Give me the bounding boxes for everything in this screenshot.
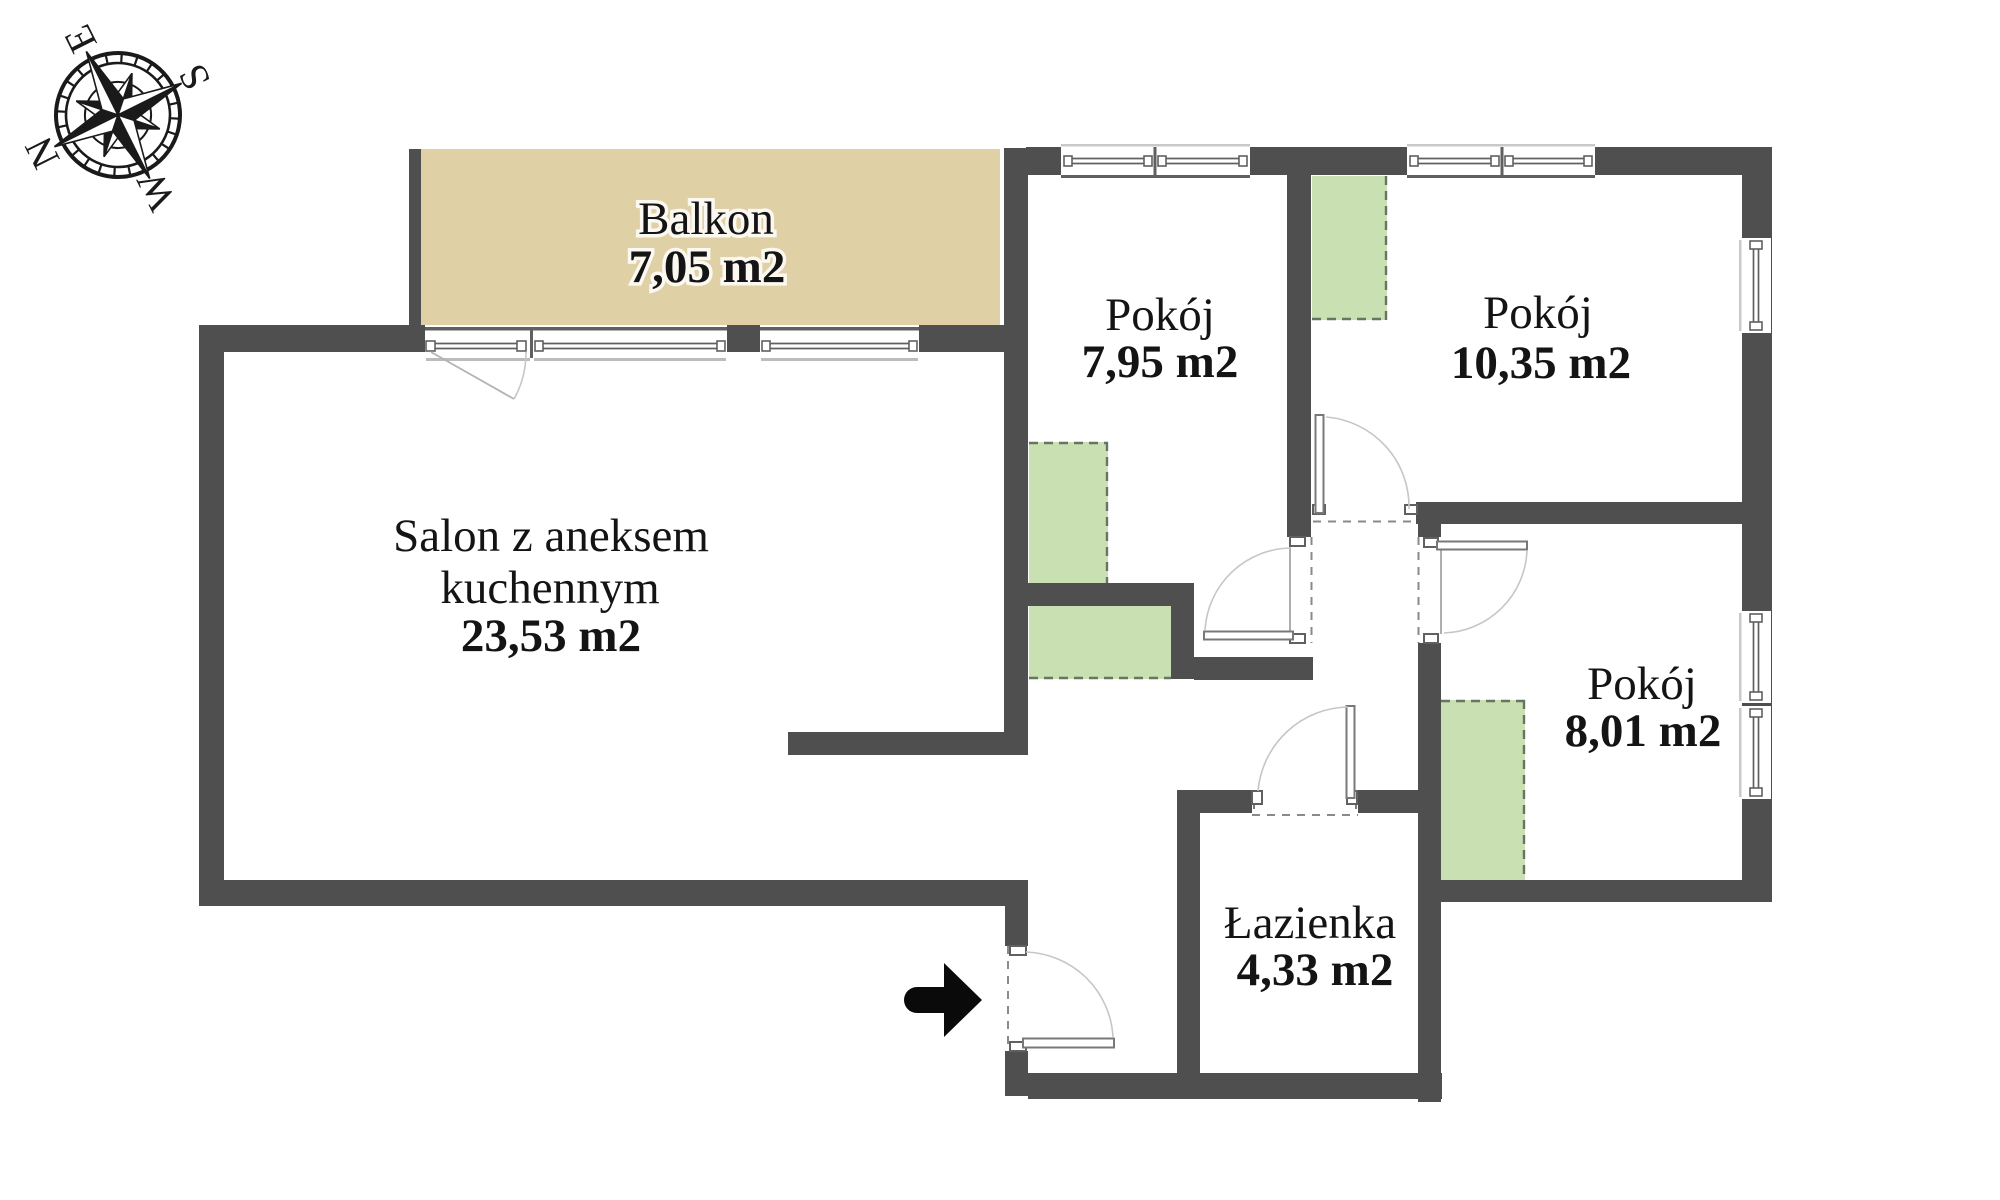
svg-text:kuchennym: kuchennym: [440, 562, 659, 614]
svg-text:10,35 m2: 10,35 m2: [1451, 337, 1631, 389]
svg-text:7,95 m2: 7,95 m2: [1082, 336, 1239, 388]
svg-text:Łazienka: Łazienka: [1224, 897, 1396, 949]
svg-text:23,53 m2: 23,53 m2: [461, 610, 641, 662]
svg-text:Salon z aneksem: Salon z aneksem: [393, 510, 709, 562]
svg-text:Balkon: Balkon: [638, 193, 774, 245]
svg-text:Pokój: Pokój: [1483, 287, 1593, 339]
svg-text:4,33 m2: 4,33 m2: [1237, 944, 1394, 996]
svg-text:7,05 m2: 7,05 m2: [629, 241, 786, 293]
svg-text:8,01 m2: 8,01 m2: [1565, 705, 1722, 757]
svg-text:Pokój: Pokój: [1587, 658, 1697, 710]
svg-text:Pokój: Pokój: [1105, 289, 1215, 341]
